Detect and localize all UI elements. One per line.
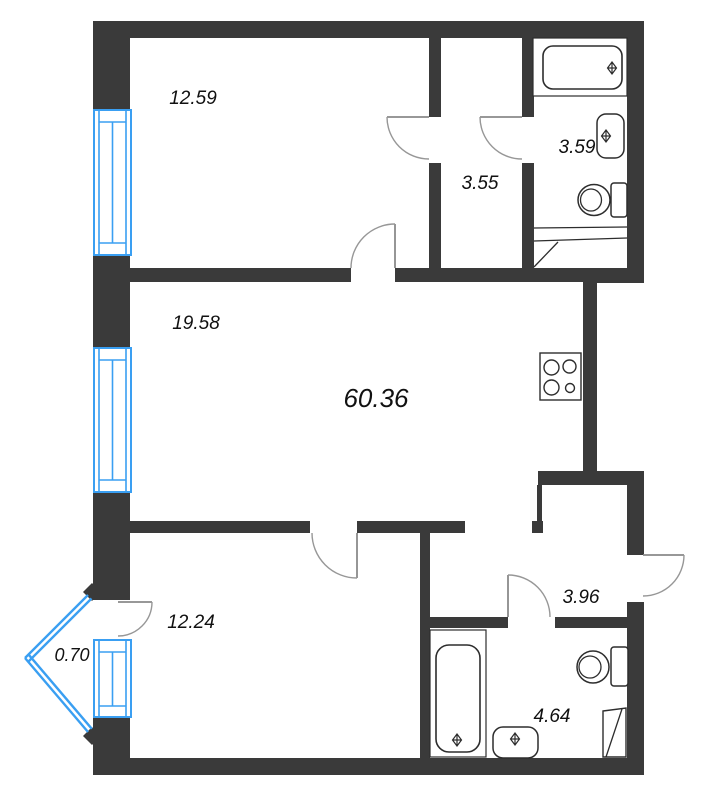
room2-top-wall-b [357,521,465,533]
right-wall-top [627,21,644,283]
room-area-label: 3.96 [563,587,600,608]
left-wall-mid2 [93,492,130,600]
bathtub-icon [430,630,486,757]
room-area-label: 4.64 [534,706,571,727]
window-icon [94,110,131,255]
bath2-top-wall-b [555,617,643,628]
wall-hall-bath-b [522,163,534,268]
right-wall-mid [627,485,644,555]
room-area-label: 0.70 [54,645,89,665]
bottom-wall [93,758,644,775]
wall-room-hall-a [429,38,441,117]
stove-icon [540,353,581,400]
door-icon [312,533,357,578]
toilet-icon [578,183,627,217]
toilet-icon [577,647,628,686]
left-wall-top [93,21,130,110]
wall-room-hall-b [429,163,441,268]
kitchen-wall [583,268,597,471]
sink-icon [597,114,624,158]
vent-shaft-icon [534,227,627,267]
room-area-label: 12.24 [167,612,215,633]
top-wall [93,21,644,38]
fixtures [430,38,628,758]
entrance-door-icon [643,555,684,596]
windows [25,110,131,732]
room-area-label: 3.59 [559,137,596,158]
mid-vertical-wall [420,521,430,758]
entry-stub-wall [537,485,542,523]
door-icon [508,575,550,617]
window-icon [94,348,131,492]
floor-plan-page: 12.59 3.55 3.59 19.58 60.36 12.24 0.70 3… [0,0,712,800]
left-wall-mid1 [93,255,130,348]
door-icon [351,224,395,268]
floor-plan-canvas: 12.59 3.55 3.59 19.58 60.36 12.24 0.70 3… [0,0,712,800]
room-area-label: 19.58 [172,313,220,334]
balcony-door-icon [118,602,152,636]
door-icon [387,117,429,159]
room2-top-wall-a [130,521,310,533]
room-area-label: 3.55 [462,173,499,194]
entry-stub-foot [532,521,543,533]
wall-hall-bath-a [522,38,534,117]
total-area-label: 60.36 [343,383,409,413]
sink-icon [493,727,538,758]
entry-top-wall [538,471,644,485]
window-icon [94,640,131,717]
room-area-label: 12.59 [169,88,217,109]
bathtub-icon [533,38,627,96]
bath2-top-wall-a [430,617,508,628]
door-icon [480,117,522,159]
vent-shaft-icon [603,708,626,757]
h-divider-left [130,268,351,282]
